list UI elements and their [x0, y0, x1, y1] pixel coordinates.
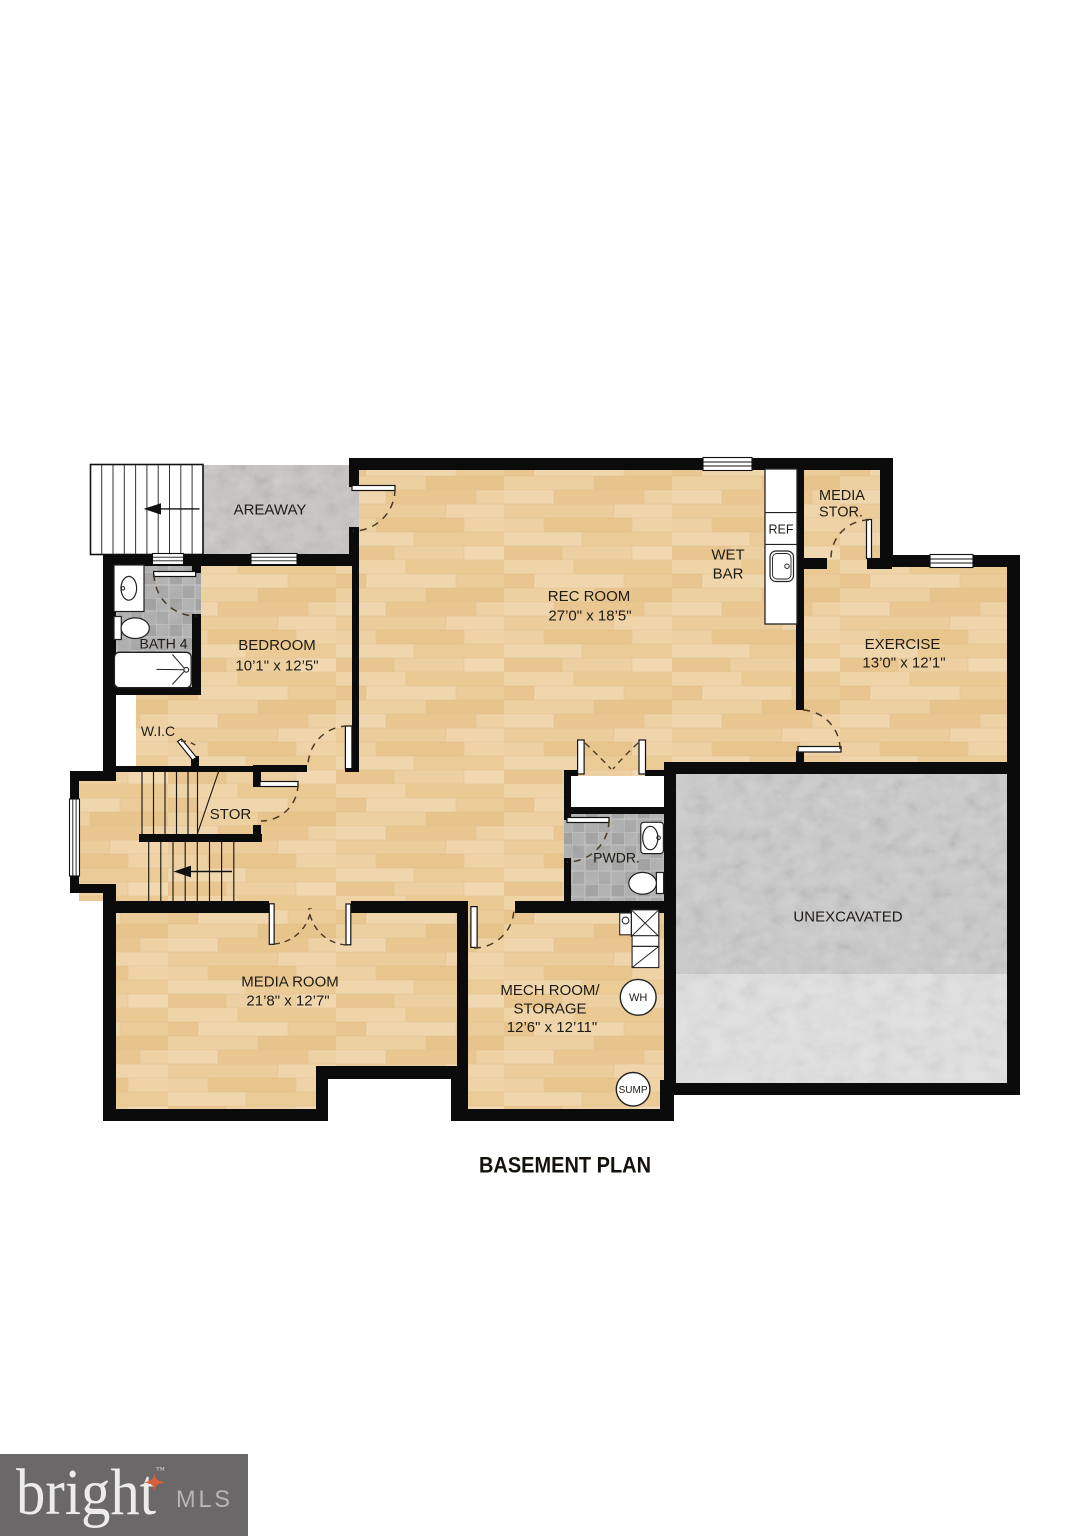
svg-text:13’0" x 12’1": 13’0" x 12’1" — [862, 655, 945, 672]
svg-text:STOR: STOR — [210, 806, 252, 823]
svg-text:PWDR.: PWDR. — [593, 850, 640, 866]
svg-text:MECH ROOM/: MECH ROOM/ — [500, 982, 600, 999]
svg-text:12’6" x 12’11": 12’6" x 12’11" — [507, 1019, 597, 1036]
svg-text:W.I.C: W.I.C — [141, 723, 175, 739]
svg-text:BASEMENT PLAN: BASEMENT PLAN — [479, 1153, 651, 1178]
svg-text:MLS: MLS — [176, 1486, 233, 1513]
svg-text:STOR.: STOR. — [819, 505, 863, 521]
svg-text:™: ™ — [156, 1465, 165, 1475]
svg-text:bright: bright — [16, 1456, 156, 1529]
svg-text:STORAGE: STORAGE — [513, 1001, 586, 1018]
svg-text:WET: WET — [711, 547, 744, 564]
svg-text:AREAWAY: AREAWAY — [234, 502, 307, 519]
svg-text:SUMP: SUMP — [619, 1085, 648, 1096]
svg-text:MEDIA ROOM: MEDIA ROOM — [241, 974, 339, 991]
svg-text:BAR: BAR — [713, 566, 744, 583]
svg-text:EXERCISE: EXERCISE — [865, 636, 941, 653]
svg-text:MEDIA: MEDIA — [819, 488, 865, 504]
svg-text:21’8" x 12’7": 21’8" x 12’7" — [246, 993, 329, 1010]
svg-text:UNEXCAVATED: UNEXCAVATED — [793, 909, 902, 926]
svg-text:BEDROOM: BEDROOM — [238, 637, 316, 654]
svg-text:REC ROOM: REC ROOM — [548, 588, 631, 605]
svg-text:REF: REF — [769, 523, 794, 537]
svg-text:BATH 4: BATH 4 — [140, 636, 188, 652]
svg-text:27’0" x 18’5": 27’0" x 18’5" — [548, 608, 631, 625]
svg-text:10’1" x 12’5": 10’1" x 12’5" — [235, 658, 318, 675]
svg-text:WH: WH — [629, 992, 647, 1004]
